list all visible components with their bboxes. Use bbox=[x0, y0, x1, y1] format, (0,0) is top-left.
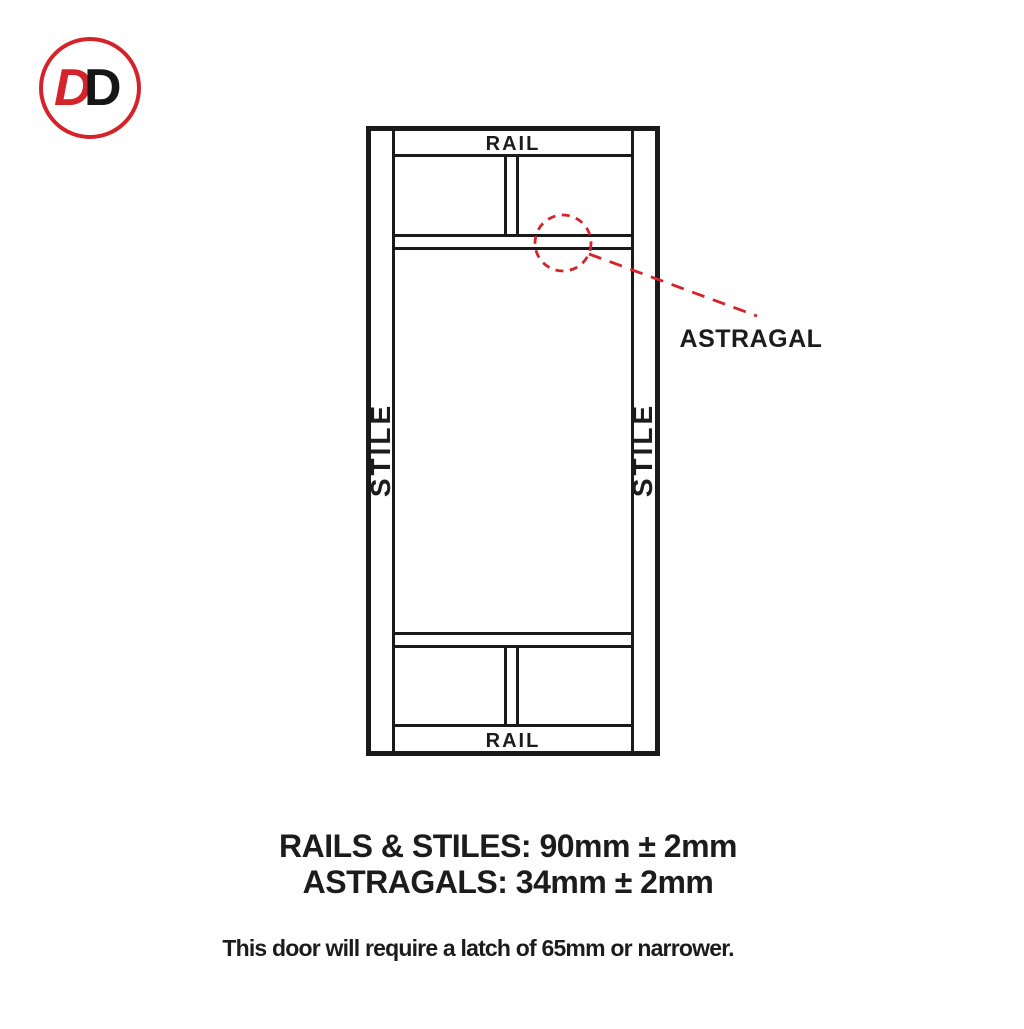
astragal-top-vertical-line2 bbox=[516, 157, 519, 234]
spec-astragals: ASTRAGALS: 34mm ± 2mm bbox=[303, 864, 714, 900]
callout-dashed-circle bbox=[535, 215, 591, 271]
rail-bottom-label: RAIL bbox=[486, 730, 541, 752]
callout-leader-line bbox=[589, 254, 757, 316]
diagram-canvas: D D RAIL RAIL bbox=[0, 0, 1024, 1024]
door-frame-lines bbox=[392, 131, 634, 751]
latch-note: This door will require a latch of 65mm o… bbox=[222, 935, 733, 961]
astragal-bottom-horizontal-line1 bbox=[395, 632, 631, 635]
astragal-callout-label: ASTRAGAL bbox=[680, 325, 823, 353]
door-spec-diagram: D D RAIL RAIL bbox=[0, 0, 1024, 1024]
astragal-top-vertical-line1 bbox=[504, 157, 507, 234]
door-part-labels: RAIL RAIL STILE STILE bbox=[365, 133, 658, 752]
logo-letter-black: D bbox=[84, 59, 122, 117]
stile-left-label: STILE bbox=[365, 403, 396, 497]
brand-logo: D D bbox=[41, 39, 139, 137]
astragal-top-horizontal-line1 bbox=[395, 234, 631, 237]
rail-line-bottom bbox=[395, 724, 631, 727]
astragal-bottom-horizontal-line2 bbox=[395, 645, 631, 648]
astragal-bottom-vertical-line1 bbox=[504, 648, 507, 724]
door-border-top bbox=[366, 126, 660, 131]
spec-rails-stiles: RAILS & STILES: 90mm ± 2mm bbox=[279, 828, 737, 864]
astragal-top-horizontal-line2 bbox=[395, 247, 631, 250]
door-outline bbox=[366, 126, 660, 756]
stile-right-label: STILE bbox=[627, 403, 658, 497]
rail-top-label: RAIL bbox=[486, 133, 541, 155]
astragal-bottom-vertical-line2 bbox=[516, 648, 519, 724]
spec-text-block: RAILS & STILES: 90mm ± 2mm ASTRAGALS: 34… bbox=[222, 828, 737, 961]
